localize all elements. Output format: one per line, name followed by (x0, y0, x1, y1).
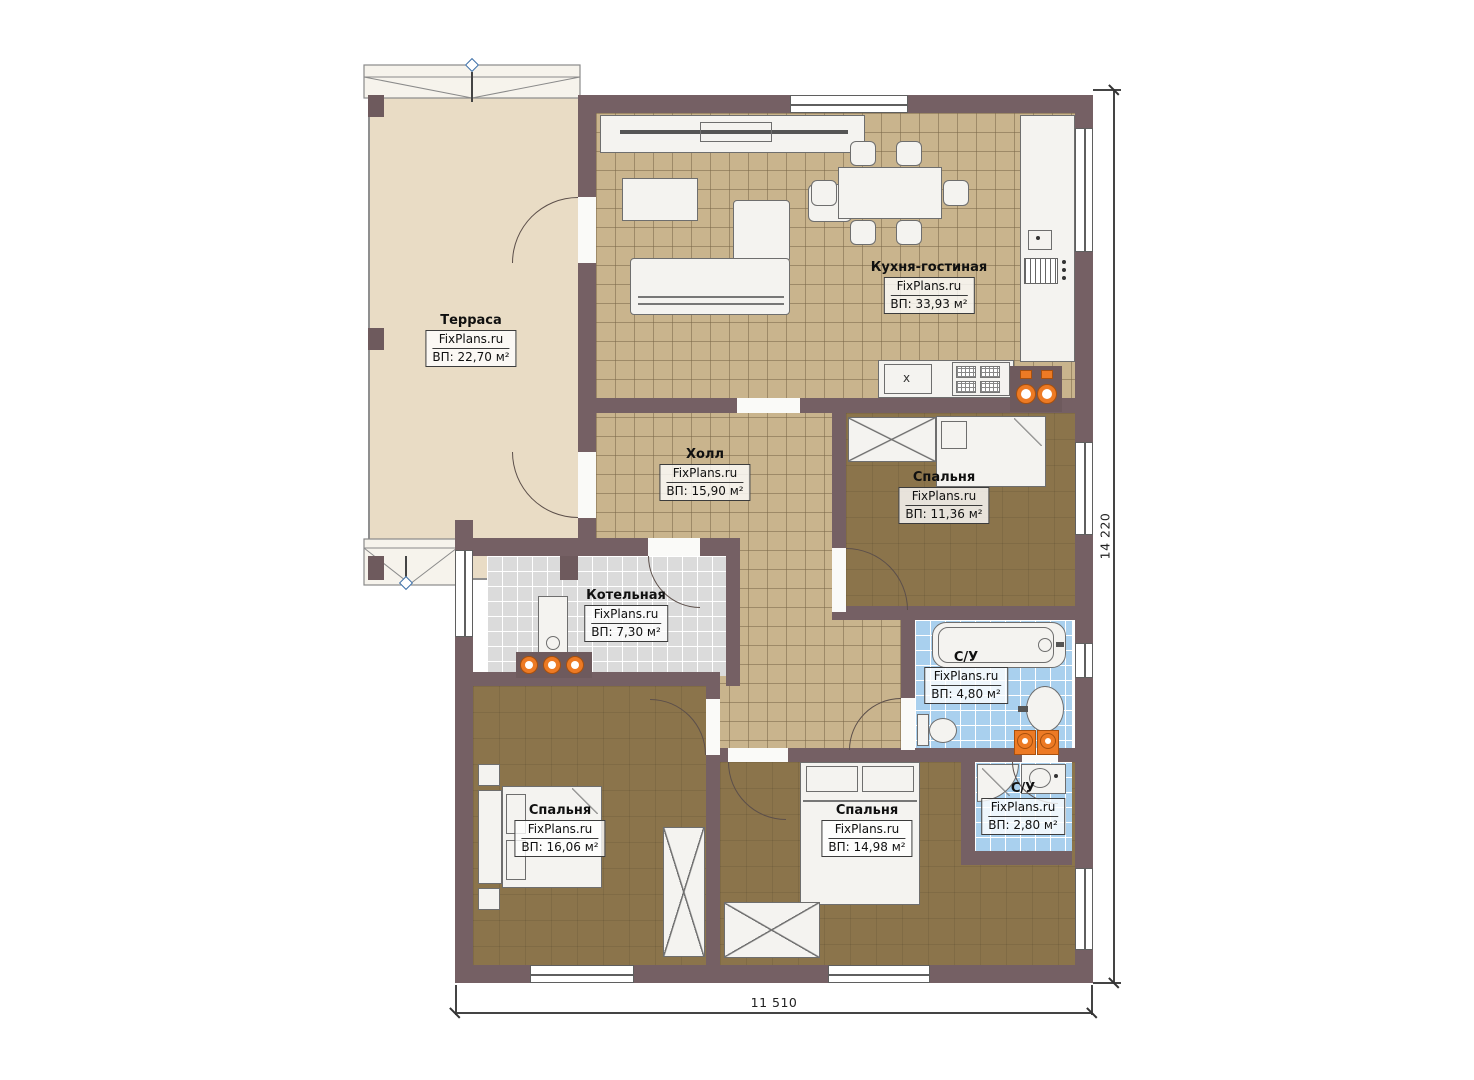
coffee-table (622, 178, 698, 221)
extension-line-right-top (1093, 89, 1121, 91)
kitchen-boiler-pipe-1 (1020, 370, 1032, 379)
kitchen-sink (1028, 230, 1052, 250)
window-bedroom2-bottom (530, 965, 634, 983)
dining-chair-1 (850, 141, 876, 166)
dimension-line-right (1113, 89, 1115, 983)
washer-1-door (1017, 733, 1033, 749)
room-label-bedroom2: Спальня FixPlans.ruВП: 16,06 м² (514, 803, 605, 857)
headboard-bedroom2 (478, 790, 502, 884)
opening-terrace-living (578, 197, 596, 263)
bathtub-faucet (1056, 642, 1064, 647)
pillow-bedroom3-b (862, 766, 914, 792)
window-bathroom1-right (1075, 643, 1093, 678)
sink-cabinet-mark: x (903, 371, 910, 385)
room-area: ВП: 7,30 м² (591, 623, 661, 641)
washbasin-bathroom1 (1026, 686, 1064, 732)
stove-burner-2 (980, 366, 1000, 378)
room-area: ВП: 22,70 м² (432, 348, 509, 366)
roof-axis-line-top (471, 72, 473, 102)
room-area: ВП: 11,36 м² (905, 505, 982, 523)
window-bedroom1-right (1075, 442, 1093, 535)
dining-chair-6 (943, 180, 969, 206)
room-label-kitchen: Кухня-гостиная FixPlans.ruВП: 33,93 м² (871, 260, 987, 314)
room-name: Холл (659, 447, 750, 462)
wardrobe-bedroom1 (848, 417, 936, 462)
counter-knob-1 (1062, 260, 1066, 264)
room-area: ВП: 14,98 м² (828, 838, 905, 856)
nightstand-bedroom2-b (478, 888, 500, 910)
extension-line-bottom-left (455, 985, 457, 1015)
pillow-bedroom1 (941, 421, 967, 449)
brand: FixPlans.ru (905, 488, 982, 505)
dimension-text-right: 14 220 (1098, 513, 1113, 560)
wardrobe-bedroom3 (724, 902, 820, 958)
brand: FixPlans.ru (521, 821, 598, 838)
room-area: ВП: 16,06 м² (521, 838, 598, 856)
toilet-tank (917, 714, 929, 746)
stove-burner-1 (956, 366, 976, 378)
terrace-pillar-3 (368, 556, 384, 580)
boiler-tank-1 (520, 656, 538, 674)
kitchen-sink-faucet (1036, 236, 1040, 240)
wardrobe-bedroom2 (663, 827, 705, 957)
bathtub-drain (1038, 638, 1052, 652)
opening-bathroom1 (901, 698, 915, 750)
brand: FixPlans.ru (931, 668, 1001, 685)
room-name: Спальня (898, 470, 989, 485)
boiler-tank-3 (566, 656, 584, 674)
room-area: ВП: 15,90 м² (666, 482, 743, 500)
boiler-tank-2 (543, 656, 561, 674)
extension-line-right-bottom (1093, 982, 1121, 984)
room-name: Спальня (821, 803, 912, 818)
room-label-hall: Холл FixPlans.ruВП: 15,90 м² (659, 447, 750, 501)
window-bedroom3-right (1075, 868, 1093, 950)
dimension-text-bottom: 11 510 (751, 995, 798, 1010)
room-name: Терраса (425, 313, 516, 328)
kitchen-boiler-2 (1037, 384, 1057, 404)
brand: FixPlans.ru (432, 331, 509, 348)
counter-knob-3 (1062, 276, 1066, 280)
room-label-bedroom3: Спальня FixPlans.ruВП: 14,98 м² (821, 803, 912, 857)
opening-terrace-hall (578, 452, 596, 518)
room-name: С/У (924, 650, 1008, 665)
room-label-terrace: Терраса FixPlans.ruВП: 22,70 м² (425, 313, 516, 367)
room-area: ВП: 2,80 м² (988, 816, 1058, 834)
brand: FixPlans.ru (591, 606, 661, 623)
brand: FixPlans.ru (828, 821, 905, 838)
sofa-chaise (733, 200, 790, 262)
room-label-bathroom2: С/У FixPlans.ruВП: 2,80 м² (981, 781, 1065, 835)
dining-chair-3 (850, 220, 876, 245)
kitchen-floor (596, 113, 1075, 398)
opening-bedroom3 (728, 748, 788, 762)
sofa-seat-line-1 (638, 296, 784, 298)
sofa-main (630, 258, 790, 315)
counter-knob-2 (1062, 268, 1066, 272)
washbasin-faucet (1018, 706, 1028, 712)
kitchen-boiler-pipe-2 (1041, 370, 1053, 379)
room-area: ВП: 33,93 м² (890, 295, 967, 313)
brand: FixPlans.ru (988, 799, 1058, 816)
brand: FixPlans.ru (666, 465, 743, 482)
kitchen-boiler-1 (1016, 384, 1036, 404)
dining-table (838, 167, 942, 219)
terrace-pillar-1 (368, 95, 384, 117)
terrace-pillar-2 (368, 328, 384, 350)
opening-boiler (648, 538, 700, 556)
toilet-bowl (929, 718, 957, 743)
floor-plan: x (0, 0, 1474, 1080)
window-kitchen-right (1075, 128, 1093, 252)
washer-2-door (1040, 733, 1056, 749)
brand: FixPlans.ru (890, 278, 967, 295)
opening-bedroom1 (832, 548, 846, 612)
room-label-bathroom1: С/У FixPlans.ruВП: 4,80 м² (924, 650, 1008, 704)
opening-kitchen-hall (737, 398, 800, 413)
nightstand-bedroom2-a (478, 764, 500, 786)
wall-boiler-right (726, 538, 740, 686)
fridge (1024, 258, 1058, 284)
room-name: Котельная (584, 588, 668, 603)
tv-console (700, 122, 772, 142)
window-bedroom3-bottom (828, 965, 930, 983)
terrace-pillar-4 (560, 556, 578, 580)
room-name: С/У (981, 781, 1065, 796)
room-area: ВП: 4,80 м² (931, 685, 1001, 703)
blanket-fold-bedroom1 (1014, 418, 1042, 446)
bed-bedroom3-line (803, 800, 917, 802)
window-kitchen-top (790, 95, 908, 113)
sofa-seat-line-2 (638, 303, 784, 305)
room-name: Кухня-гостиная (871, 260, 987, 275)
wall-bathroom2-south (961, 851, 1072, 865)
dining-chair-2 (896, 141, 922, 166)
room-label-bedroom1: Спальня FixPlans.ruВП: 11,36 м² (898, 470, 989, 524)
dimension-line-bottom (455, 1012, 1092, 1014)
window-boiler-left (455, 550, 473, 637)
pillow-bedroom3-a (806, 766, 858, 792)
wall-bathroom2-west (961, 748, 975, 865)
dining-chair-4 (896, 220, 922, 245)
room-name: Спальня (514, 803, 605, 818)
boiler-gauge (546, 636, 560, 650)
dining-chair-5 (811, 180, 837, 206)
stove-burner-4 (980, 381, 1000, 393)
stove-burner-3 (956, 381, 976, 393)
room-label-boiler: Котельная FixPlans.ruВП: 7,30 м² (584, 588, 668, 642)
opening-bedroom2 (706, 699, 720, 755)
